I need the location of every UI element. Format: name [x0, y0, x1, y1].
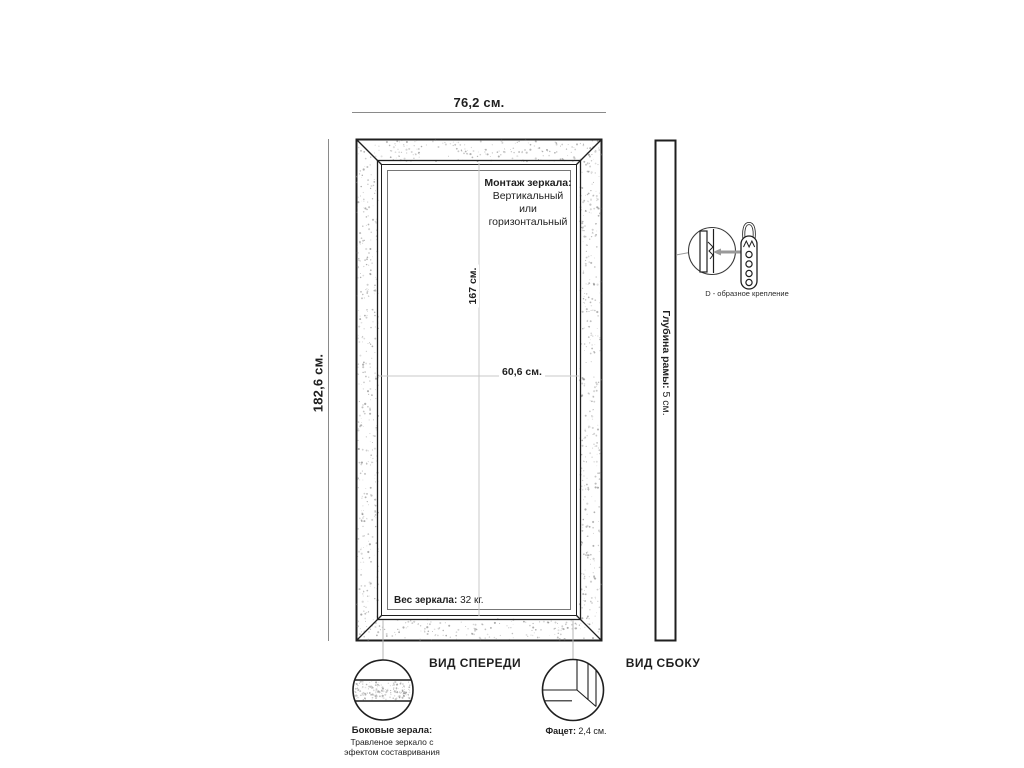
bracket-detail-circle — [676, 228, 741, 275]
side-mirror-detail-circle — [353, 660, 413, 720]
mirror-weight-note: Вес зеркала: 32 кг. — [394, 595, 484, 606]
front-width-dimension: 76,2 см. — [454, 95, 505, 110]
side-mirror-caption: Боковые зерала: Травленое зеркало с эфек… — [344, 726, 440, 758]
mirror-dimension-diagram: 76,2 см. 182,6 см. Монтаж зеркала: Верти… — [0, 0, 1024, 768]
side-mirror-caption-line: Травленое зеркало с — [344, 737, 440, 748]
mirror-inner-width-dimension: 60,6 см. — [499, 366, 545, 378]
facet-caption: Фацет: 2,4 см. — [545, 726, 606, 737]
mount-note-line: Вертикальный — [484, 190, 571, 203]
side-view-caption: ВИД СБОКУ — [626, 656, 701, 670]
mirror-weight-value: 32 кг. — [460, 595, 483, 606]
facet-caption-value: 2,4 см. — [578, 726, 606, 736]
mirror-weight-title: Вес зеркала: — [394, 595, 457, 606]
frame-depth-note: Глубина рамы: 5 см. — [660, 308, 672, 417]
diagram-linework — [0, 0, 1024, 768]
side-mirror-caption-title: Боковые зерала: — [344, 726, 440, 737]
front-view-caption: ВИД СПЕРЕДИ — [429, 656, 521, 670]
facet-caption-title: Фацет: — [545, 726, 576, 736]
front-height-dimension: 182,6 см. — [311, 354, 326, 412]
mirror-inner-height-dimension: 167 см. — [467, 265, 479, 308]
side-mirror-caption-line: эфектом составривания — [344, 747, 440, 758]
mount-note-line: или — [484, 203, 571, 216]
mount-note-line: горизонтальный — [484, 216, 571, 229]
mount-note: Монтаж зеркала: Вертикальный или горизон… — [484, 177, 571, 229]
facet-detail-circle — [543, 660, 604, 721]
d-bracket-caption: D - образное крепление — [705, 289, 789, 298]
frame-depth-value: 5 см. — [660, 392, 672, 416]
frame-depth-title: Глубина рамы: — [660, 310, 672, 388]
mount-note-title: Монтаж зеркала: — [484, 177, 571, 190]
d-ring-hanger — [741, 224, 757, 290]
